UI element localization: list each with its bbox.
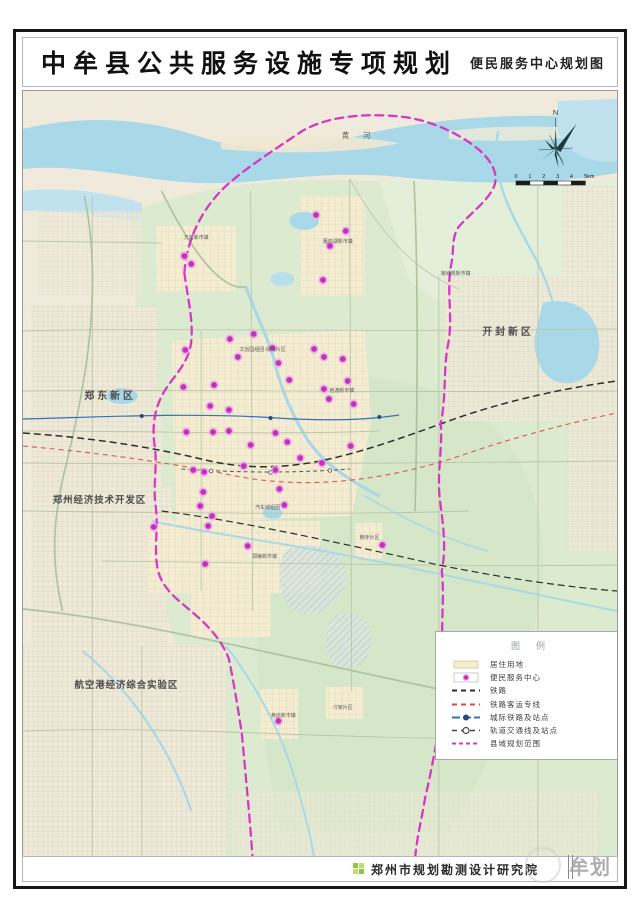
legend-item-passenger-rail: 铁路客运专线 bbox=[436, 698, 618, 711]
railway-swatch bbox=[450, 685, 484, 696]
service-center-dot bbox=[346, 441, 355, 450]
legend: 图例 居住用地 便民服务中心 铁路 bbox=[435, 631, 618, 760]
service-center-dot bbox=[343, 376, 352, 385]
service-center-dot bbox=[319, 352, 328, 361]
region-label-zhengdong: 郑东新区 bbox=[84, 389, 135, 402]
intercity-swatch bbox=[450, 712, 484, 723]
legend-item-railway: 铁路 bbox=[436, 684, 618, 697]
service-center-dot bbox=[200, 467, 209, 476]
page: { "header": { "title": "中牟县公共服务设施专项规划", … bbox=[0, 0, 640, 906]
service-center-dot bbox=[275, 484, 284, 493]
residential-swatch bbox=[450, 659, 484, 670]
service-center-dot bbox=[149, 522, 158, 531]
service-center-dot bbox=[180, 251, 189, 260]
town-label: 郑庵新市镇 bbox=[252, 553, 277, 560]
town-label: 官渡新市镇 bbox=[329, 387, 354, 394]
service-center-dot bbox=[187, 259, 196, 268]
north-label: N bbox=[553, 108, 558, 117]
urban-patch bbox=[31, 306, 158, 391]
town-label: 文创园组团·绿博片区 bbox=[240, 346, 286, 353]
legend-label: 铁路 bbox=[490, 685, 507, 696]
legend-item-residential: 居住用地 bbox=[436, 658, 618, 671]
service-center-dot bbox=[283, 437, 292, 446]
town-label: 万滩新市镇 bbox=[184, 234, 209, 241]
service-center-dot bbox=[239, 461, 248, 470]
rail-transit-swatch bbox=[450, 725, 484, 736]
service-center-dot bbox=[243, 541, 252, 550]
legend-label: 轨道交通线及站点 bbox=[490, 725, 558, 736]
legend-item-intercity: 城际铁路及站点 bbox=[436, 711, 618, 724]
header: 中牟县公共服务设施专项规划 便民服务中心规划图 bbox=[22, 37, 618, 87]
town-label: 狼城岗新市镇 bbox=[441, 270, 471, 277]
legend-item-county-boundary: 县域规划范围 bbox=[436, 737, 618, 750]
service-center-dot bbox=[318, 275, 327, 284]
scale-tick: 0 bbox=[515, 174, 518, 180]
service-center-dot bbox=[285, 375, 294, 384]
town-label: 雁鸣湖新市镇 bbox=[323, 238, 353, 245]
footer: 郑州市规划勘测设计研究院 牟划 bbox=[22, 856, 618, 882]
service-center-dot bbox=[280, 500, 289, 509]
urban-patch bbox=[568, 423, 618, 551]
urban-patch-airport bbox=[23, 646, 226, 859]
service-center-dot bbox=[208, 511, 217, 520]
page-title: 中牟县公共服务设施专项规划 bbox=[23, 44, 457, 80]
scale-tick: 1 bbox=[528, 174, 531, 180]
legend-item-service-center: 便民服务中心 bbox=[436, 671, 618, 684]
service-center-dot bbox=[338, 354, 347, 363]
town-label: 黄店新市镇 bbox=[271, 712, 296, 719]
urban-patch-zhengdong bbox=[31, 391, 162, 486]
legend-label: 居住用地 bbox=[490, 659, 524, 670]
service-center-dot bbox=[341, 226, 350, 235]
service-center-dot bbox=[324, 394, 333, 403]
legend-label: 城际铁路及站点 bbox=[490, 712, 550, 723]
service-center-dot bbox=[201, 559, 210, 568]
service-center-dot bbox=[209, 427, 218, 436]
service-center-dot bbox=[196, 501, 205, 510]
service-center-dot bbox=[378, 540, 387, 549]
service-center-dot bbox=[181, 345, 190, 354]
scale-tick: 4 bbox=[570, 174, 573, 180]
legend-label: 县域规划范围 bbox=[490, 738, 541, 749]
service-center-dot bbox=[317, 458, 326, 467]
town-label: 汽车城组团 bbox=[255, 504, 280, 511]
legend-item-rail-transit: 轨道交通线及站点 bbox=[436, 724, 618, 737]
urban-patch-zhengan bbox=[191, 591, 270, 637]
watermark-circle-icon bbox=[525, 847, 561, 883]
service-center-dot bbox=[319, 384, 328, 393]
service-center-dot bbox=[296, 453, 305, 462]
passenger-rail-swatch bbox=[450, 699, 484, 710]
watermark: 牟划 bbox=[503, 851, 613, 881]
service-center-dot bbox=[274, 358, 283, 367]
river-label: 黄 河 bbox=[342, 130, 377, 140]
service-center-dot bbox=[246, 440, 255, 449]
map-area[interactable]: 黄 河 郑东新区 开封新区 郑州经济技术开发区 航空港经济综合实验区 雁鸣湖新市… bbox=[22, 90, 618, 860]
urban-patch bbox=[563, 186, 617, 274]
legend-title: 图例 bbox=[452, 639, 618, 652]
scale-tick: 5km bbox=[584, 174, 595, 180]
service-center-dot bbox=[179, 382, 188, 391]
sheet-frame: 中牟县公共服务设施专项规划 便民服务中心规划图 bbox=[13, 29, 627, 889]
service-center-dot bbox=[206, 401, 215, 410]
scale-tick: 2 bbox=[542, 174, 545, 180]
service-center-dot bbox=[189, 465, 198, 474]
region-label-kaifeng: 开封新区 bbox=[482, 325, 533, 338]
service-center-dot bbox=[199, 487, 208, 496]
service-center-dot bbox=[210, 380, 219, 389]
service-center-dot bbox=[182, 427, 191, 436]
service-center-dot bbox=[249, 329, 258, 338]
map-subtitle: 便民服务中心规划图 bbox=[470, 53, 617, 72]
county-boundary-swatch bbox=[450, 738, 484, 749]
service-center-dot bbox=[310, 344, 319, 353]
service-center-dot bbox=[224, 426, 233, 435]
service-center-dot bbox=[225, 334, 234, 343]
service-center-dot bbox=[349, 399, 358, 408]
service-center-dot bbox=[233, 352, 242, 361]
region-label-airport: 航空港经济综合实验区 bbox=[74, 679, 178, 691]
urban-patch-diaojia bbox=[326, 687, 364, 719]
institute-logo-icon bbox=[353, 863, 365, 875]
service-center-swatch bbox=[450, 672, 484, 683]
service-center-dot bbox=[271, 428, 280, 437]
service-center-dot bbox=[311, 210, 320, 219]
lake bbox=[271, 272, 295, 286]
service-center-dot bbox=[204, 521, 213, 530]
town-label: 韩寺片区 bbox=[360, 534, 380, 541]
service-center-dot bbox=[271, 465, 280, 474]
legend-label: 便民服务中心 bbox=[490, 672, 541, 683]
watermark-text: 牟划 bbox=[569, 851, 611, 880]
scale-tick: 3 bbox=[556, 174, 559, 180]
legend-label: 铁路客运专线 bbox=[490, 699, 541, 710]
service-center-dot bbox=[224, 405, 233, 414]
region-label-jingkai: 郑州经济技术开发区 bbox=[53, 494, 146, 506]
town-label: 刁家片区 bbox=[333, 704, 353, 711]
